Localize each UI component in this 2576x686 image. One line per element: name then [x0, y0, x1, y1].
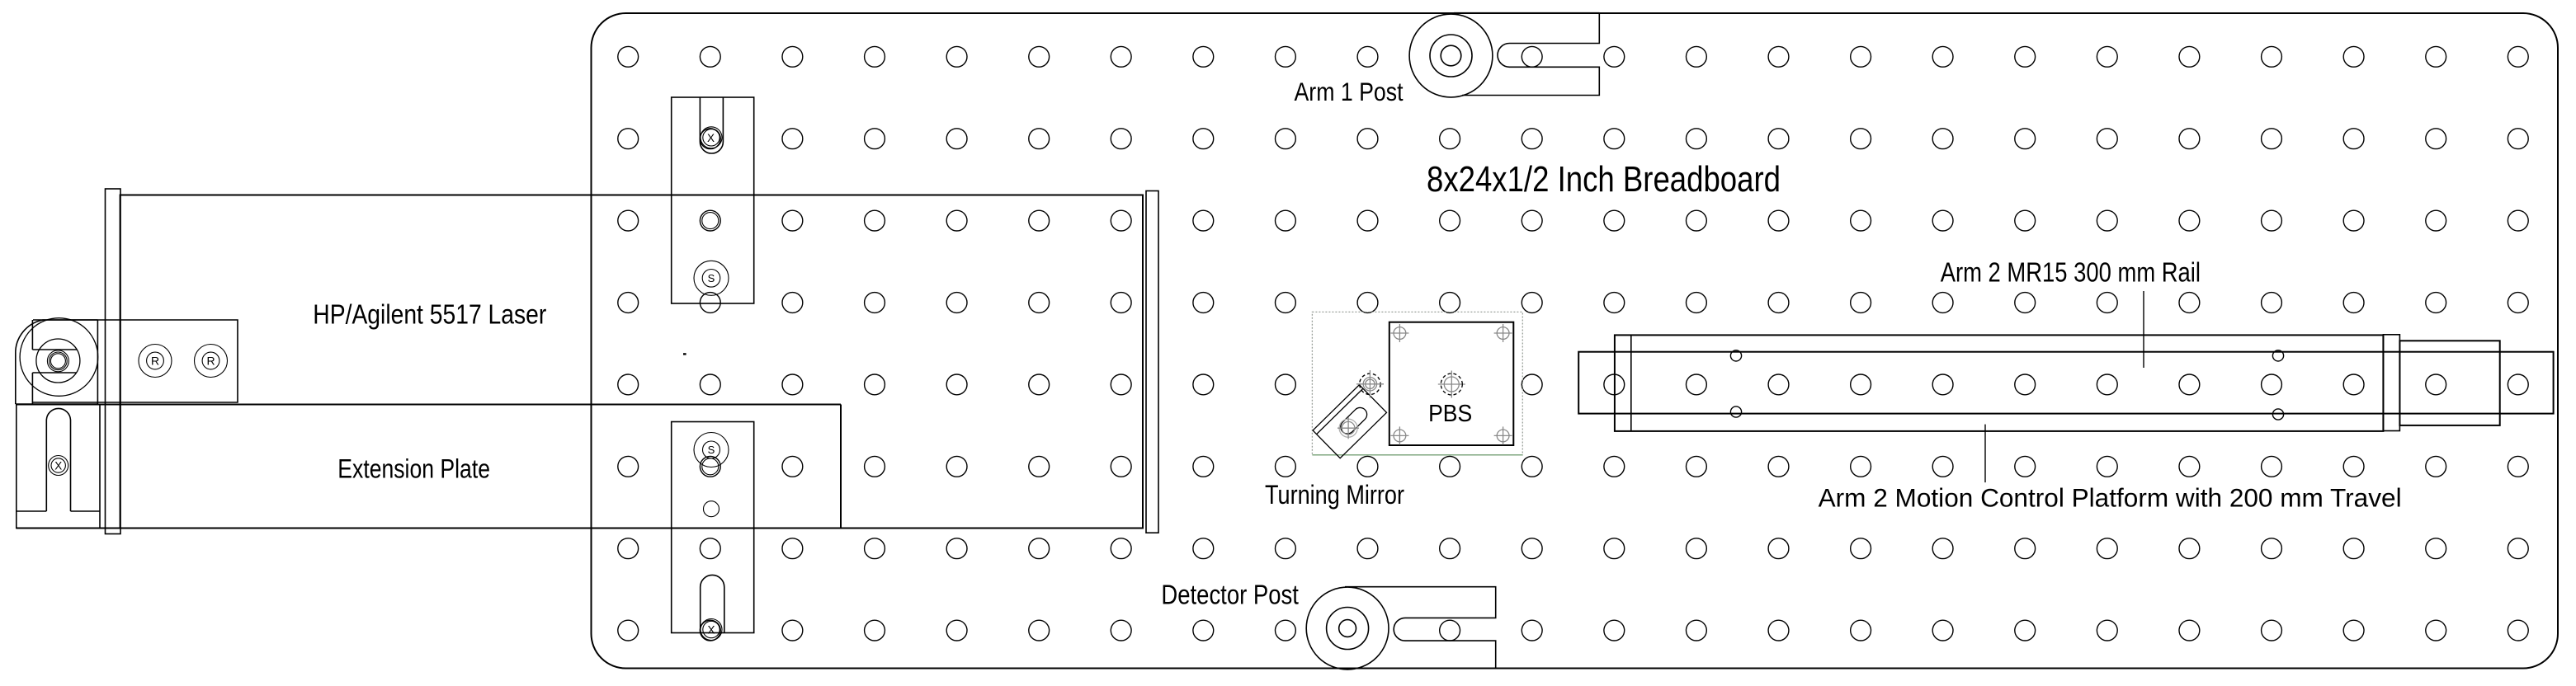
svg-text:S: S: [708, 272, 715, 284]
svg-text:Turning Mirror: Turning Mirror: [1265, 480, 1404, 510]
svg-text:HP/Agilent 5517 Laser: HP/Agilent 5517 Laser: [313, 299, 546, 330]
svg-text:X: X: [707, 132, 715, 144]
svg-text:8x24x1/2 Inch Breadboard: 8x24x1/2 Inch Breadboard: [1427, 159, 1781, 200]
svg-text:Arm 1 Post: Arm 1 Post: [1295, 77, 1404, 106]
svg-text:X: X: [54, 459, 62, 472]
svg-text:Extension Plate: Extension Plate: [337, 453, 490, 483]
svg-text:S: S: [708, 444, 715, 456]
svg-text:R: R: [151, 355, 159, 368]
svg-text:Arm 2 MR15 300 mm Rail: Arm 2 MR15 300 mm Rail: [1941, 257, 2201, 288]
svg-text:X: X: [707, 623, 715, 636]
svg-text:Detector Post: Detector Post: [1161, 579, 1299, 609]
svg-text:R: R: [206, 355, 215, 368]
svg-text:Arm 2 Motion Control Platform: Arm 2 Motion Control Platform with 200 m…: [1819, 483, 2402, 513]
svg-text:PBS: PBS: [1428, 401, 1472, 427]
